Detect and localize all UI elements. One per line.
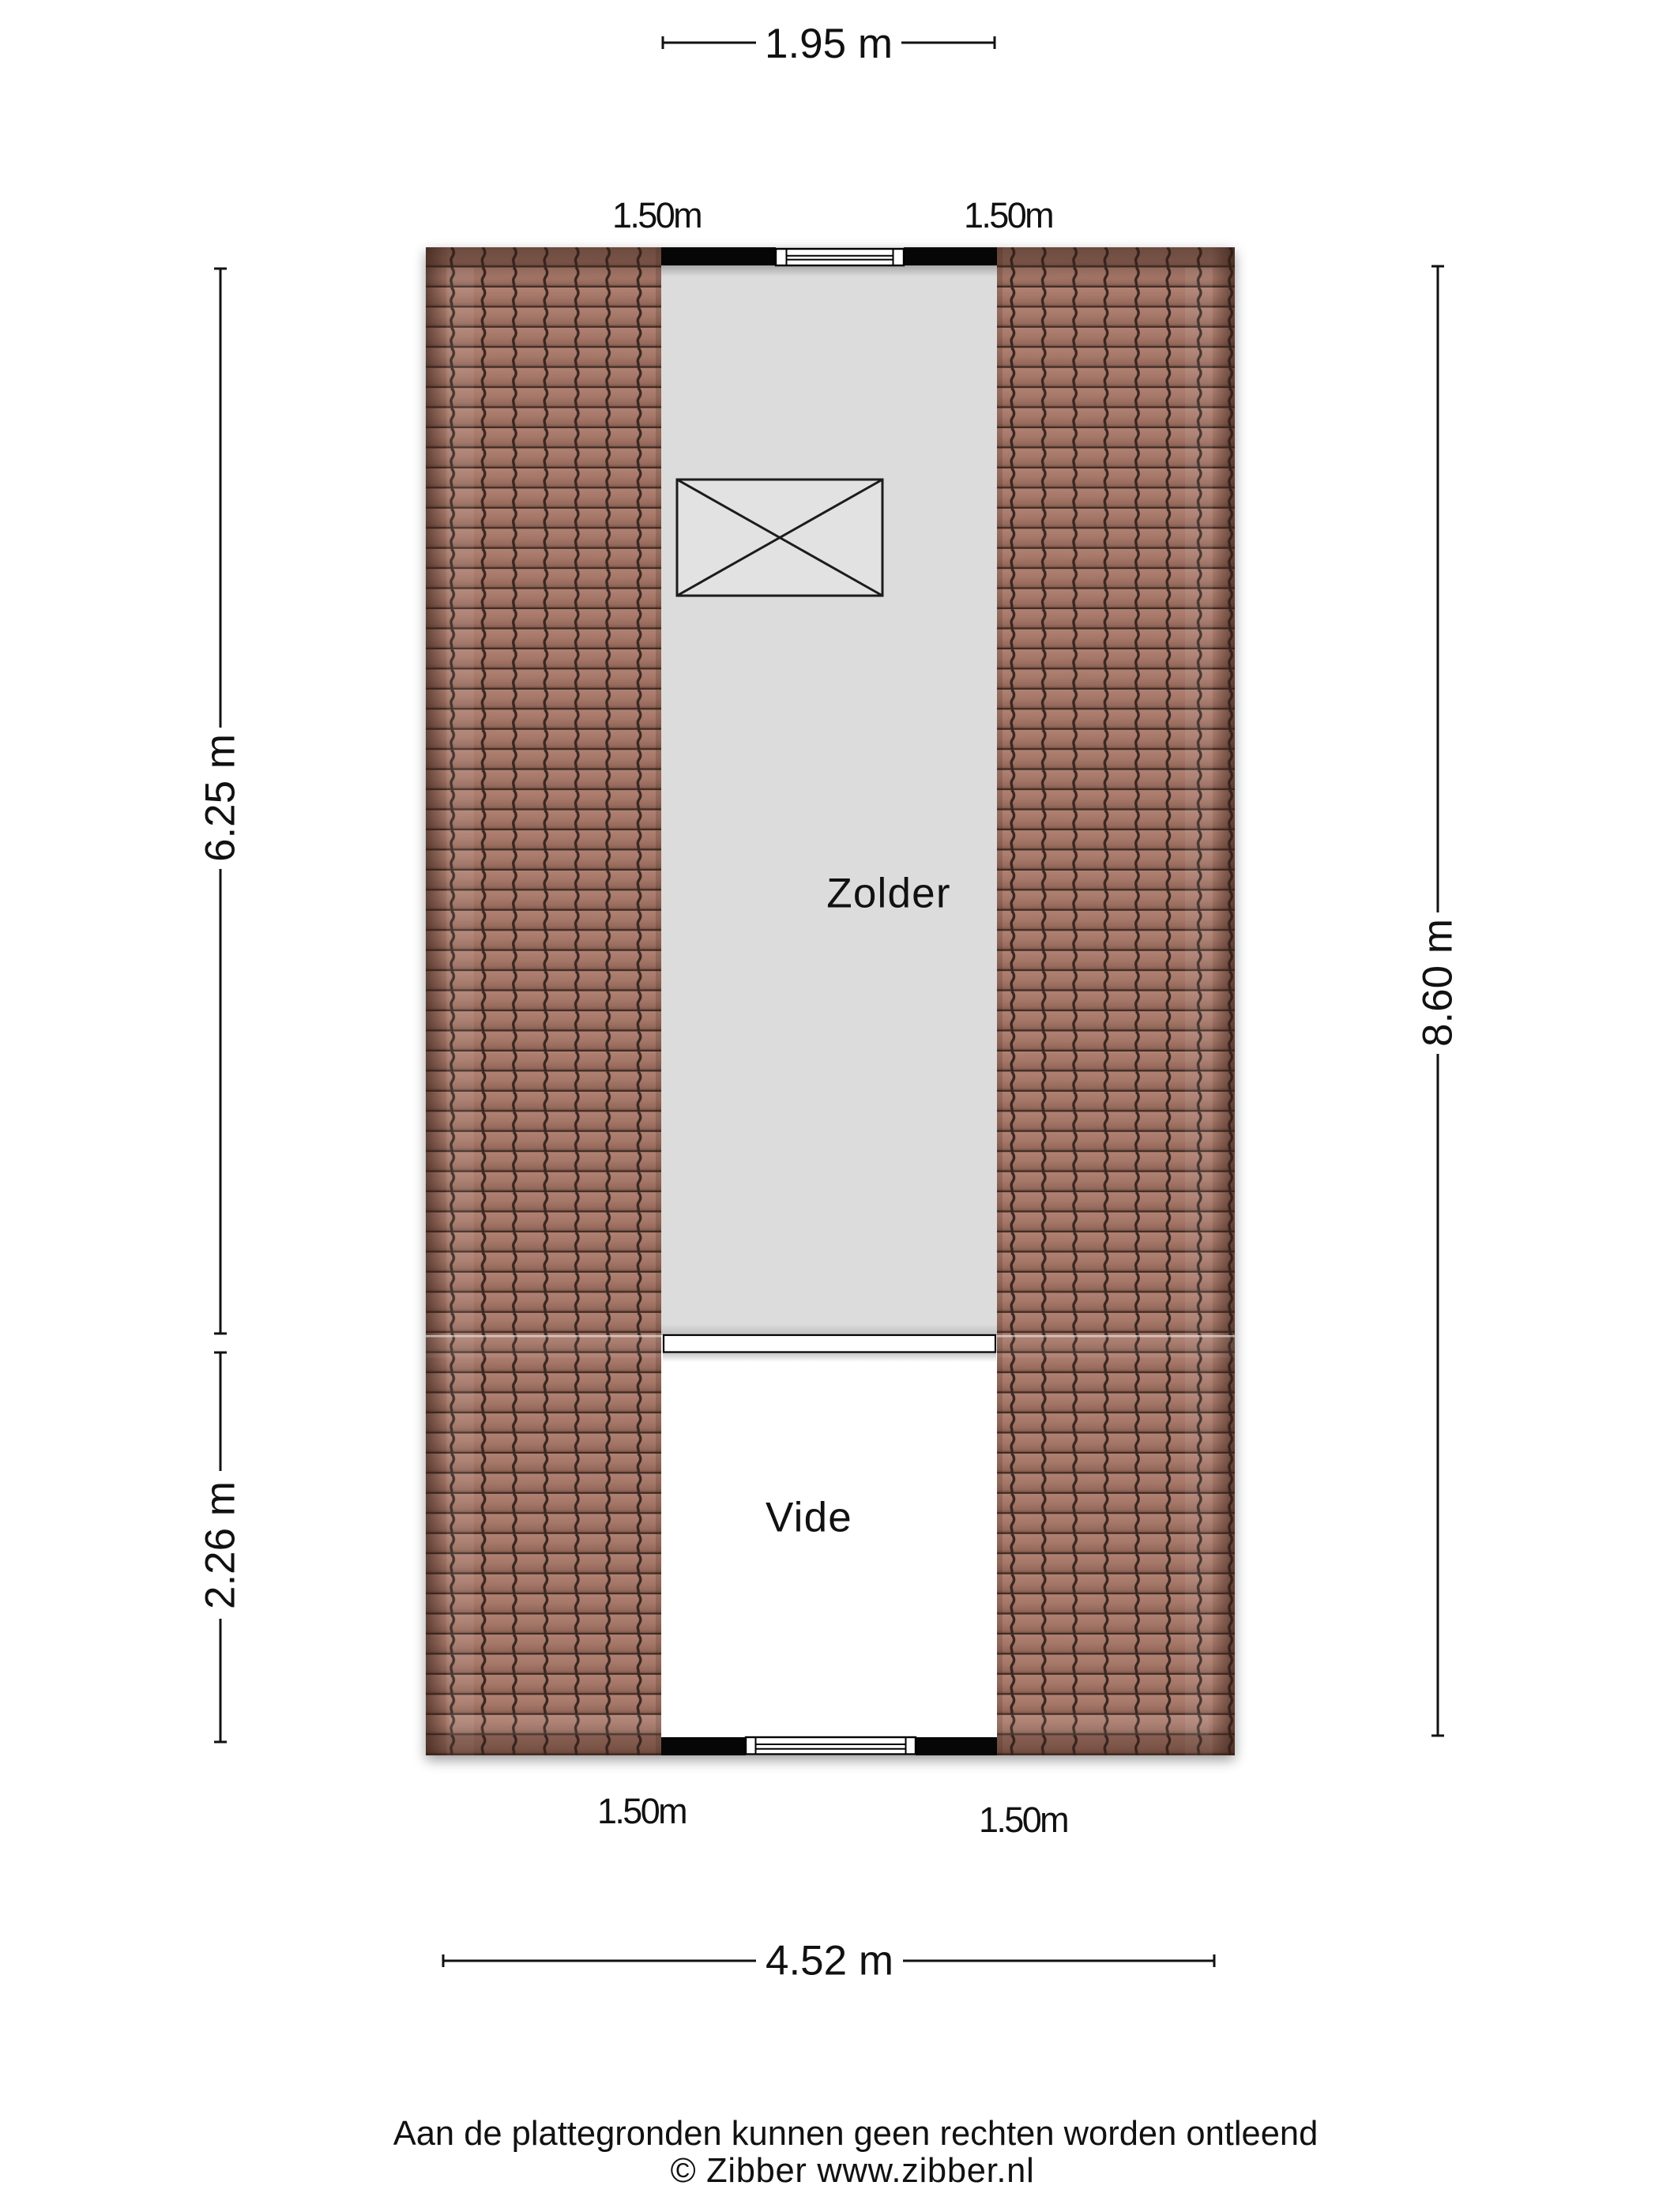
svg-text:Vide: Vide (766, 1495, 852, 1541)
svg-text:Zolder: Zolder (826, 871, 950, 917)
svg-text:1.50m: 1.50m (964, 195, 1052, 235)
svg-text:1.50m: 1.50m (979, 1800, 1067, 1840)
svg-text:© Zibber www.zibber.nl: © Zibber www.zibber.nl (671, 2152, 1035, 2190)
svg-text:1.95 m: 1.95 m (765, 21, 893, 67)
svg-text:6.25 m: 6.25 m (197, 734, 244, 862)
svg-text:1.50m: 1.50m (612, 195, 701, 235)
svg-text:1.50m: 1.50m (597, 1791, 686, 1831)
svg-text:2.26 m: 2.26 m (197, 1481, 244, 1609)
svg-text:Aan de plattegronden kunnen ge: Aan de plattegronden kunnen geen rechten… (393, 2115, 1319, 2153)
svg-text:8.60 m: 8.60 m (1415, 919, 1461, 1047)
svg-text:4.52 m: 4.52 m (766, 1938, 893, 1984)
